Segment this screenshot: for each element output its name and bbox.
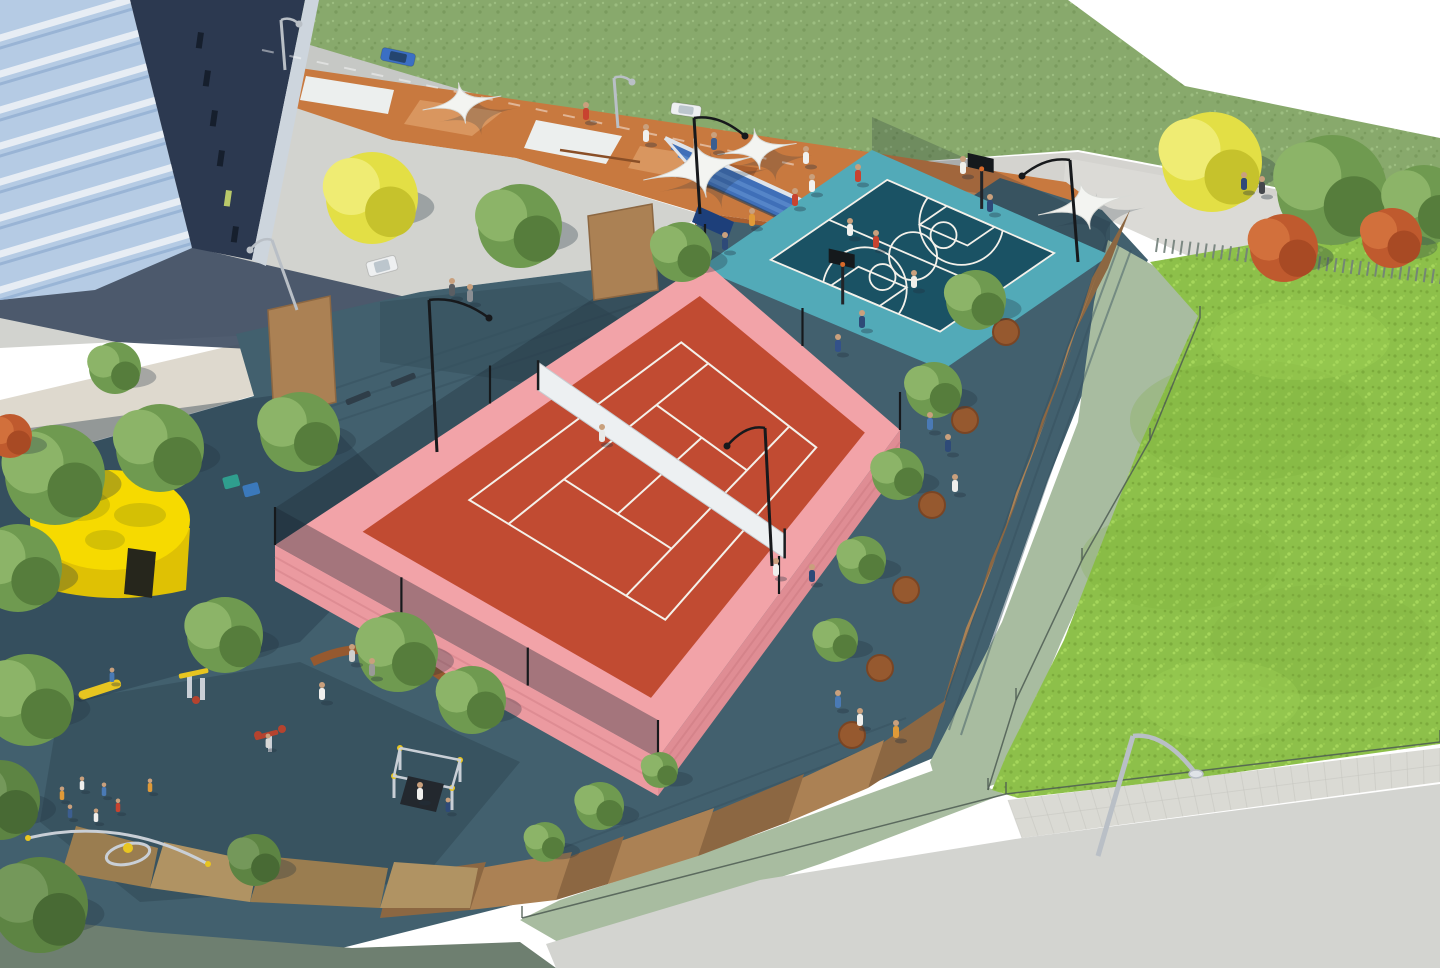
person	[803, 152, 809, 164]
person	[102, 787, 107, 796]
person	[110, 672, 115, 682]
street-lamp-head	[296, 21, 303, 28]
person-head	[1241, 172, 1247, 178]
person	[449, 284, 455, 296]
street-lamp-head	[724, 443, 731, 450]
street-lamp-head	[742, 133, 749, 140]
person	[369, 664, 375, 676]
person	[857, 714, 863, 726]
person-head	[449, 278, 455, 284]
person	[711, 138, 717, 150]
corten-planter	[993, 319, 1019, 345]
person-head	[711, 132, 717, 138]
person-shadow	[794, 207, 806, 212]
tree-canopy-shade	[111, 362, 140, 391]
person-shadow	[805, 165, 817, 170]
person-head	[369, 658, 375, 664]
person	[583, 108, 589, 120]
person-head	[809, 174, 815, 180]
person	[643, 130, 649, 142]
person-shadow	[837, 353, 849, 358]
person-shadow	[149, 792, 158, 796]
person-shadow	[895, 739, 907, 744]
person	[80, 781, 85, 790]
person-shadow	[1243, 191, 1255, 196]
tree-canopy-shade	[294, 422, 338, 466]
person-head	[116, 799, 121, 804]
person-head	[987, 194, 993, 200]
corten-planter	[867, 655, 893, 681]
person-head	[643, 124, 649, 130]
person	[855, 170, 861, 182]
person-head	[467, 284, 473, 290]
street-lamp-head	[486, 315, 493, 322]
corten-panel	[588, 204, 658, 300]
scene-svg	[0, 0, 1440, 968]
person	[960, 162, 966, 174]
person-head	[599, 424, 605, 430]
person	[809, 180, 815, 192]
person	[749, 214, 755, 226]
twister-seat	[278, 725, 286, 733]
tree-canopy-shade	[467, 692, 504, 729]
tree-canopy-shade	[365, 187, 416, 238]
tree-canopy-shade	[542, 837, 564, 859]
person-head	[952, 474, 958, 480]
person-head	[68, 805, 73, 810]
person-head	[583, 102, 589, 108]
person-shadow	[947, 453, 959, 458]
architectural-render	[0, 0, 1440, 968]
person-head	[809, 564, 815, 570]
person-shadow	[321, 701, 333, 706]
person-shadow	[267, 748, 277, 752]
person	[116, 803, 121, 812]
person-head	[835, 334, 841, 340]
person-shadow	[61, 800, 70, 804]
person-shadow	[351, 663, 363, 668]
twister-seat	[254, 731, 262, 739]
person-shadow	[81, 790, 90, 794]
person-shadow	[447, 812, 457, 816]
person-head	[349, 644, 355, 650]
tree-canopy-shade	[678, 245, 711, 278]
tree-canopy-shade	[33, 893, 86, 946]
person-head	[945, 434, 951, 440]
person-shadow	[857, 183, 869, 188]
tree-canopy-shade	[1388, 231, 1421, 264]
person-head	[417, 782, 423, 788]
person	[60, 791, 65, 800]
person-shadow	[859, 727, 871, 732]
tree-canopy-shade	[392, 642, 436, 686]
spinner-hub	[123, 843, 133, 853]
person	[773, 564, 779, 576]
person-head	[857, 708, 863, 714]
lawn-shading	[1210, 300, 1390, 380]
tree-canopy-shade	[11, 557, 59, 605]
person-head	[722, 232, 728, 238]
street-lamp-head	[1019, 173, 1026, 180]
person-head	[927, 412, 933, 418]
tree-canopy-shade	[596, 800, 622, 826]
corten-planter	[952, 407, 978, 433]
person-head	[911, 270, 917, 276]
tree-canopy-shade	[657, 766, 677, 786]
person	[893, 726, 899, 738]
tree-canopy-shade	[1279, 240, 1316, 277]
person-shadow	[751, 227, 763, 232]
person-head	[873, 230, 879, 236]
person-shadow	[117, 812, 126, 816]
person	[319, 688, 325, 700]
person-head	[446, 798, 451, 803]
person-shadow	[861, 329, 873, 334]
lawn-shading	[1130, 360, 1370, 480]
basketball-rim	[840, 262, 845, 267]
person-head	[749, 208, 755, 214]
person-shadow	[724, 251, 736, 256]
tree-canopy-shade	[219, 626, 261, 668]
person-head	[859, 310, 865, 316]
person-shadow	[837, 709, 849, 714]
tree-canopy-shade	[894, 468, 923, 497]
person	[148, 783, 153, 792]
corten-planter	[919, 492, 945, 518]
person-head	[102, 783, 107, 788]
street-lamp-head	[247, 247, 254, 254]
person-shadow	[585, 121, 597, 126]
person-head	[847, 218, 853, 224]
person-shadow	[419, 801, 431, 806]
person-head	[773, 558, 779, 564]
lawn-shading	[1080, 510, 1280, 610]
tree-canopy-shade	[153, 437, 201, 485]
person	[945, 440, 951, 452]
person-shadow	[913, 289, 925, 294]
person-shadow	[371, 677, 383, 682]
leaf-shadow	[114, 503, 166, 527]
beam-cap	[205, 861, 211, 867]
person-shadow	[601, 443, 613, 448]
person	[467, 290, 473, 302]
person-shadow	[69, 818, 78, 822]
lawn-shading	[1140, 660, 1300, 740]
fitness-post	[200, 678, 205, 700]
tree-canopy-shade	[48, 463, 103, 518]
person-shadow	[1261, 195, 1273, 200]
tree-canopy-shade	[833, 635, 857, 659]
beam-cap	[25, 835, 31, 841]
tree-canopy-shade	[1205, 150, 1260, 205]
street-lamp-head	[1189, 770, 1203, 778]
fitness-seat	[192, 696, 200, 704]
person-head	[960, 156, 966, 162]
person-shadow	[929, 431, 941, 436]
person-head	[94, 809, 99, 814]
person	[417, 788, 423, 800]
person	[835, 696, 841, 708]
person	[599, 430, 605, 442]
basketball-rim	[979, 166, 984, 171]
tree-canopy-shade	[7, 431, 31, 455]
person	[952, 480, 958, 492]
person-shadow	[95, 822, 104, 826]
person-shadow	[875, 249, 887, 254]
person-shadow	[775, 577, 787, 582]
person-head	[110, 668, 115, 673]
playground-fence	[380, 862, 478, 908]
person-shadow	[103, 796, 112, 800]
person	[446, 802, 451, 812]
tree-canopy-shade	[21, 689, 72, 740]
person	[349, 650, 355, 662]
person-head	[319, 682, 325, 688]
person	[835, 340, 841, 352]
person-shadow	[954, 493, 966, 498]
person	[266, 738, 271, 748]
person	[859, 316, 865, 328]
person-head	[855, 164, 861, 170]
person-head	[803, 146, 809, 152]
fitness-post	[187, 676, 192, 698]
person-head	[1259, 176, 1265, 182]
person-head	[893, 720, 899, 726]
leaf-shadow	[85, 530, 125, 550]
person	[68, 809, 73, 818]
person-head	[835, 690, 841, 696]
person-shadow	[989, 213, 1001, 218]
person	[847, 224, 853, 236]
corten-planter	[893, 577, 919, 603]
person	[1259, 182, 1265, 194]
person	[873, 236, 879, 248]
person-shadow	[849, 237, 861, 242]
person-shadow	[811, 193, 823, 198]
pavilion-door	[124, 548, 156, 598]
person-shadow	[811, 583, 823, 588]
tree-canopy-shade	[514, 216, 560, 262]
person	[987, 200, 993, 212]
tree-canopy-shade	[930, 383, 961, 414]
person	[927, 418, 933, 430]
person	[1241, 178, 1247, 190]
tree-canopy-shade	[972, 293, 1005, 326]
person-head	[148, 779, 153, 784]
person-shadow	[645, 143, 657, 148]
tree-canopy-shade	[251, 854, 280, 883]
person-head	[792, 188, 798, 194]
street-lamp-head	[629, 79, 636, 86]
person-head	[60, 787, 65, 792]
person	[94, 813, 99, 822]
person	[722, 238, 728, 250]
tree-canopy-shade	[858, 554, 884, 580]
person-head	[266, 734, 271, 739]
person	[911, 276, 917, 288]
person	[792, 194, 798, 206]
person-head	[80, 777, 85, 782]
person-shadow	[713, 151, 725, 156]
person	[809, 570, 815, 582]
person-shadow	[111, 682, 121, 686]
person-shadow	[962, 175, 974, 180]
